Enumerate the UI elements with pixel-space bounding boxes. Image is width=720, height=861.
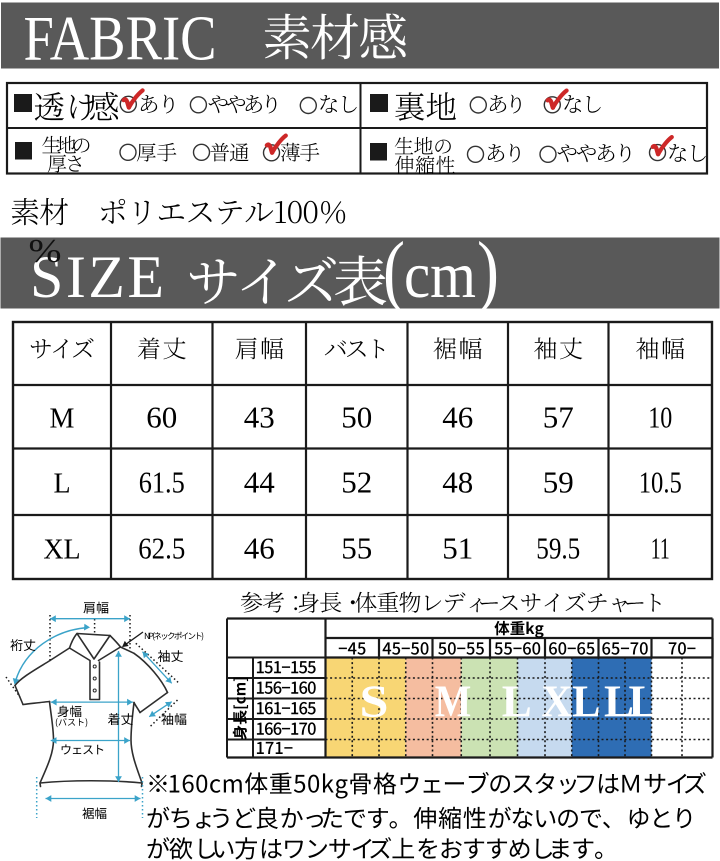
svg-text:(: ( — [383, 225, 405, 315]
svg-text:FABRIC: FABRIC — [24, 4, 217, 74]
svg-text:11: 11 — [651, 531, 670, 566]
svg-text:M: M — [50, 404, 75, 435]
svg-text:%: % — [29, 233, 62, 270]
svg-text:55: 55 — [341, 531, 372, 566]
svg-text:): ) — [477, 225, 499, 315]
svg-text:XL: XL — [43, 535, 80, 566]
svg-text:10.5: 10.5 — [639, 465, 682, 500]
svg-text:M: M — [435, 677, 472, 727]
svg-text:62.5: 62.5 — [138, 531, 185, 566]
svg-text:57: 57 — [543, 400, 574, 435]
svg-text:48: 48 — [442, 465, 473, 500]
svg-text:50: 50 — [341, 400, 372, 435]
svg-text:61.5: 61.5 — [139, 465, 185, 500]
svg-text:L: L — [502, 677, 532, 727]
svg-text:XL: XL — [542, 677, 601, 727]
svg-text:51: 51 — [442, 531, 473, 566]
svg-text:59: 59 — [543, 465, 574, 500]
svg-text:S: S — [360, 677, 389, 727]
svg-text:cm: cm — [404, 239, 476, 312]
svg-text:L: L — [53, 469, 70, 500]
svg-text:44: 44 — [244, 465, 276, 500]
svg-text:L: L — [629, 677, 659, 727]
svg-text:10: 10 — [648, 400, 672, 435]
svg-text:46: 46 — [244, 531, 275, 566]
svg-text:52: 52 — [341, 465, 372, 500]
svg-text:60: 60 — [146, 400, 177, 435]
svg-text:59.5: 59.5 — [536, 531, 580, 566]
svg-text:43: 43 — [244, 400, 275, 435]
svg-text:46: 46 — [442, 400, 473, 435]
